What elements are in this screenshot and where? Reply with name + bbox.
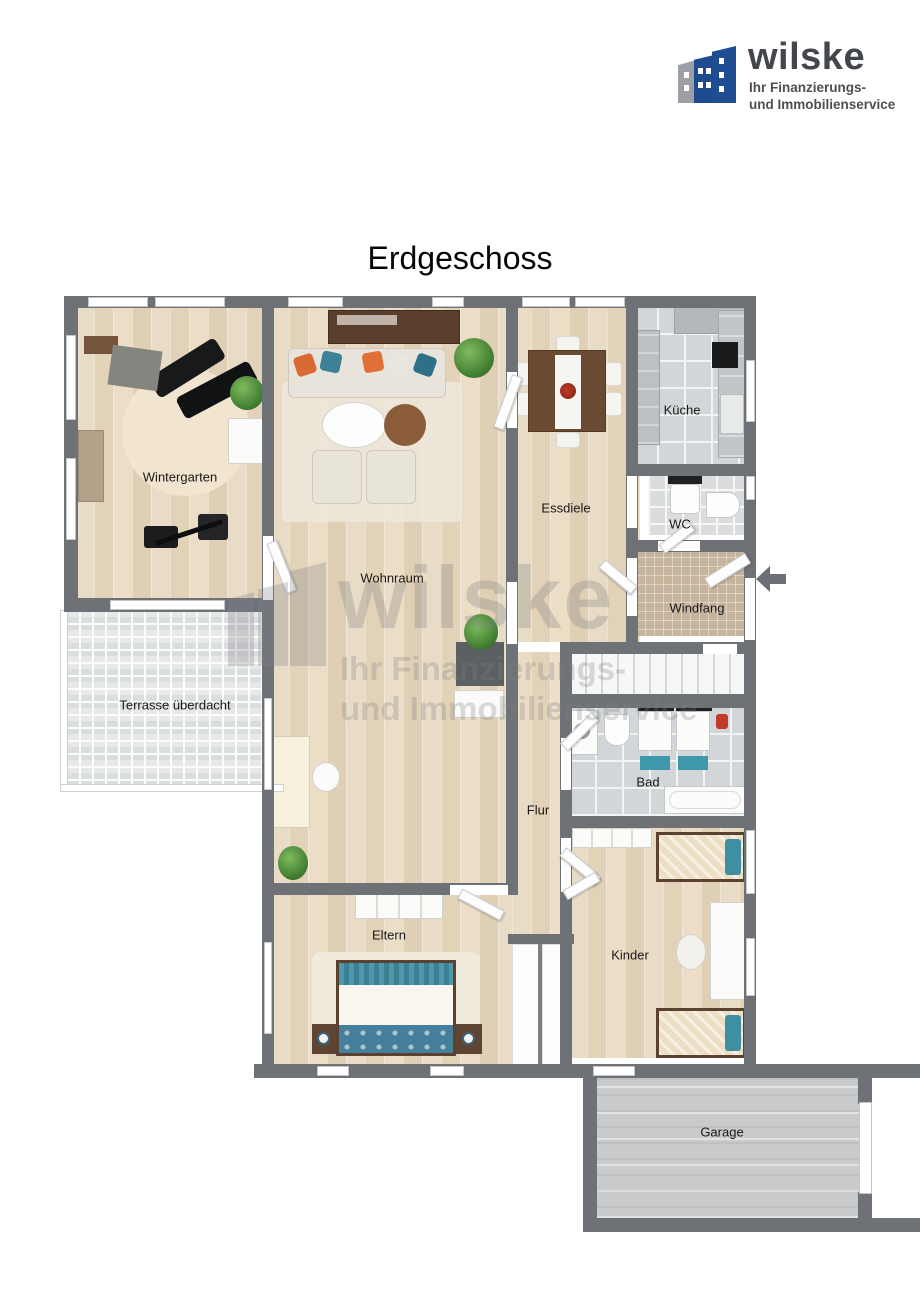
window bbox=[522, 297, 570, 307]
single-bed bbox=[656, 832, 746, 882]
wall bbox=[538, 944, 542, 1066]
sideboard bbox=[328, 310, 460, 344]
door-opening bbox=[627, 476, 637, 528]
nightstand bbox=[312, 1024, 336, 1054]
logo-building-gray bbox=[678, 60, 696, 103]
door-opening bbox=[507, 582, 517, 644]
chair bbox=[676, 934, 706, 970]
window bbox=[575, 297, 625, 307]
double-bed bbox=[336, 960, 456, 1056]
dining-chair bbox=[604, 392, 622, 416]
sliding-door bbox=[110, 600, 225, 610]
wardrobe bbox=[355, 893, 443, 919]
armchair bbox=[312, 450, 362, 504]
chair bbox=[312, 762, 340, 792]
pillow bbox=[361, 350, 384, 373]
logo-tagline-1: Ihr Finanzierungs- bbox=[749, 80, 866, 95]
dining-table bbox=[528, 350, 606, 432]
room-label-kueche: Küche bbox=[664, 403, 701, 418]
plant bbox=[230, 376, 264, 410]
logo: wilske Ihr Finanzierungs- und Immobilien… bbox=[672, 38, 897, 118]
wall bbox=[630, 464, 756, 476]
window bbox=[432, 297, 464, 307]
laundry-basket bbox=[716, 714, 728, 729]
window bbox=[746, 360, 755, 422]
dining-chair bbox=[604, 362, 622, 386]
plant bbox=[454, 338, 494, 378]
window bbox=[430, 1066, 464, 1076]
pillow-teal bbox=[725, 839, 741, 875]
wall bbox=[583, 1218, 920, 1232]
round-side-table bbox=[384, 404, 426, 446]
wall bbox=[583, 1078, 597, 1218]
window bbox=[264, 942, 272, 1034]
terrace-rail-bottom bbox=[60, 784, 284, 792]
room-label-bad: Bad bbox=[636, 775, 659, 790]
plant bbox=[464, 614, 498, 650]
window bbox=[593, 1066, 635, 1076]
toilet bbox=[706, 492, 740, 518]
page-title: Erdgeschoss bbox=[0, 240, 920, 277]
window bbox=[264, 698, 272, 790]
coffee-table bbox=[322, 402, 386, 448]
room-label-kinder: Kinder bbox=[611, 948, 649, 963]
room-label-flur: Flur bbox=[527, 803, 549, 818]
room-label-wintergarten: Wintergarten bbox=[143, 470, 217, 485]
plant bbox=[278, 846, 308, 880]
wall bbox=[508, 934, 574, 944]
bathtub bbox=[664, 786, 746, 814]
wall bbox=[560, 816, 756, 828]
dining-chair bbox=[556, 432, 580, 448]
sofa bbox=[288, 348, 446, 398]
pillow bbox=[319, 350, 343, 374]
room-label-garage: Garage bbox=[700, 1125, 743, 1140]
staircase bbox=[568, 652, 748, 698]
single-bed bbox=[656, 1008, 746, 1058]
wall bbox=[858, 1078, 872, 1104]
pillow bbox=[292, 352, 317, 377]
wardrobe bbox=[572, 828, 652, 848]
desk bbox=[272, 736, 310, 828]
window bbox=[66, 335, 76, 420]
stone-table bbox=[107, 345, 162, 392]
bath-mat bbox=[678, 756, 708, 770]
pillow bbox=[385, 352, 409, 376]
room-label-terrasse: Terrasse überdacht bbox=[119, 698, 230, 713]
room-label-wohnraum: Wohnraum bbox=[360, 571, 423, 586]
kitchen-sink bbox=[720, 394, 744, 434]
kitchen-counter bbox=[718, 310, 746, 458]
flower-centerpiece bbox=[560, 383, 576, 399]
wall bbox=[560, 694, 756, 708]
blanket bbox=[339, 1025, 453, 1053]
window bbox=[746, 938, 755, 996]
window bbox=[88, 297, 148, 307]
garage-door bbox=[859, 1102, 872, 1194]
logo-brand: wilske bbox=[748, 36, 865, 79]
logo-building-blue-right bbox=[712, 46, 736, 103]
window bbox=[746, 476, 755, 500]
nightstand bbox=[456, 1024, 482, 1054]
desk bbox=[710, 902, 748, 1000]
room-label-wc: WC bbox=[669, 517, 691, 532]
room-label-eltern: Eltern bbox=[372, 928, 406, 943]
headboard bbox=[339, 963, 453, 985]
terrace-rail-left bbox=[60, 610, 68, 792]
pillow bbox=[412, 352, 438, 378]
mirror bbox=[668, 476, 702, 484]
armchair bbox=[366, 450, 416, 504]
wall bbox=[858, 1192, 872, 1218]
exercise-equipment bbox=[144, 514, 236, 552]
logo-building-blue-mid bbox=[694, 55, 714, 103]
sink bbox=[670, 484, 700, 514]
window bbox=[66, 458, 76, 540]
window bbox=[317, 1066, 349, 1076]
sideboard bbox=[78, 430, 104, 502]
window bbox=[155, 297, 225, 307]
closet-floor-left bbox=[512, 944, 540, 1068]
room-label-windfang: Windfang bbox=[670, 601, 725, 616]
toilet bbox=[604, 714, 630, 746]
stair-opening bbox=[703, 644, 737, 654]
cooktop bbox=[712, 342, 738, 368]
vanity-sink bbox=[676, 711, 710, 751]
room-label-essdiele: Essdiele bbox=[541, 501, 590, 516]
vanity-sink bbox=[638, 711, 672, 751]
pillow-teal bbox=[725, 1015, 741, 1051]
window bbox=[288, 297, 343, 307]
cabinet bbox=[454, 690, 504, 718]
wall bbox=[254, 1064, 920, 1078]
entrance-opening bbox=[745, 578, 755, 640]
logo-buildings-icon bbox=[672, 38, 742, 106]
entrance-arrow-icon bbox=[756, 566, 786, 592]
window bbox=[746, 830, 755, 894]
floorplan: Wintergarten Wohnraum Essdiele Küche WC … bbox=[60, 290, 880, 1250]
bath-mat bbox=[640, 756, 670, 770]
room-floor-garage bbox=[595, 1078, 860, 1218]
logo-tagline-2: und Immobilienservice bbox=[749, 97, 895, 112]
